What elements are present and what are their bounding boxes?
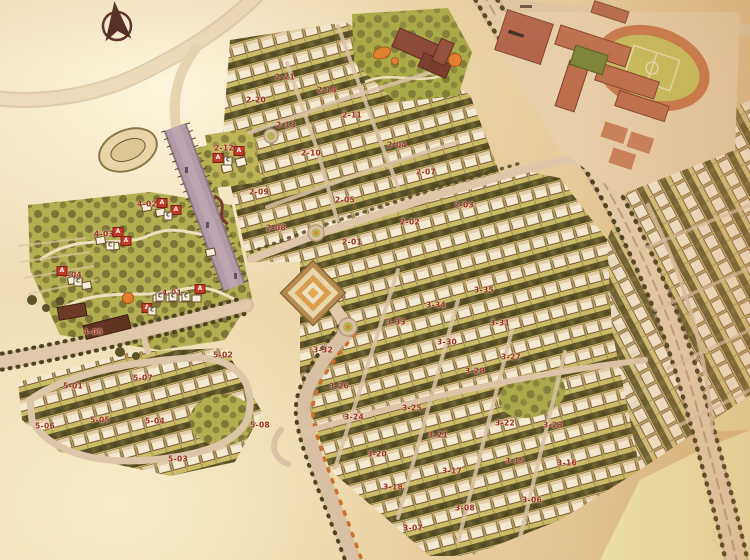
master-plan-map: 2-21 2-14 2-20 2-13 2-11 2-10 2-12 2-04 … — [0, 0, 750, 560]
site-plan-canvas — [0, 0, 750, 560]
illegible-text-mark — [520, 5, 532, 8]
north-arrow-icon — [100, 0, 132, 41]
